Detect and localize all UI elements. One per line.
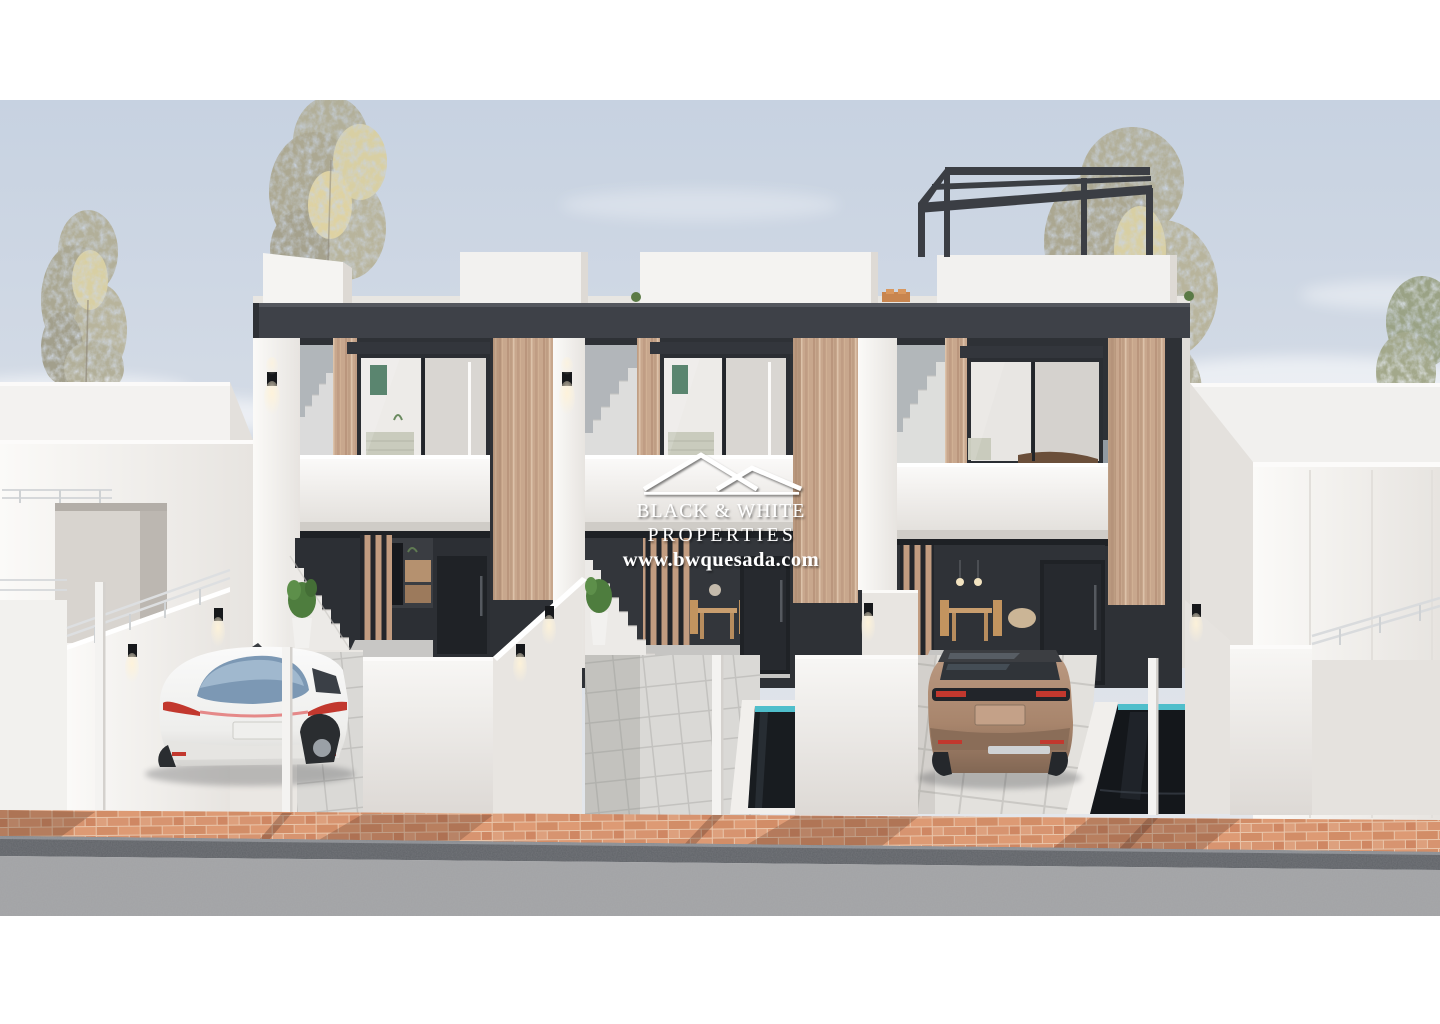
unit3-balcony (897, 463, 1130, 530)
unit1-wood-slat-screen (360, 535, 392, 655)
property-render-photo: BLACK & WHITE PROPERTIES www.bwquesada.c… (0, 0, 1440, 1024)
unit3-balcony-door (967, 358, 1123, 467)
bronze-suv (918, 650, 1082, 789)
unit1-balcony-door (357, 354, 490, 463)
unit2-balcony-door (660, 354, 790, 463)
roof-shrub (631, 292, 641, 302)
wood-pillar-1 (493, 338, 555, 600)
roof-shrub (1184, 291, 1194, 301)
logo-baseline (644, 492, 799, 495)
suv-skid-plate (988, 746, 1050, 754)
watermark-brand-line2: PROPERTIES (648, 525, 797, 546)
fascia-band (253, 303, 1190, 339)
bottom-margin (0, 916, 1440, 1024)
wood-pillar-3 (1108, 338, 1165, 605)
unit1-upper-floor (300, 338, 490, 463)
unit3-shutter-box (960, 346, 1103, 358)
sconce-light (264, 357, 280, 415)
neighbor-forecourt (1312, 660, 1440, 815)
unit1-shutter-box (347, 342, 490, 354)
watermark-website: www.bwquesada.com (623, 549, 819, 571)
unit1-balcony (290, 455, 490, 522)
unit3-upper-floor (897, 338, 1123, 467)
unit2-upper-floor (585, 338, 793, 463)
suv-license-plate (975, 705, 1025, 725)
sconce-light (559, 357, 575, 415)
watermark-brand-line1: BLACK & WHITE (636, 501, 805, 522)
unit2-stair-window (585, 345, 637, 463)
top-margin (0, 0, 1440, 100)
unit3-sofa (1008, 608, 1036, 628)
unit3-stair-window (897, 345, 945, 465)
unit1-entry-door (437, 556, 487, 654)
unit1-stair-window (300, 345, 333, 463)
unit1-wood-strip (333, 338, 357, 463)
center-pool (730, 700, 800, 814)
unit2-wood-strip (637, 338, 660, 463)
unit1-dresser (366, 432, 414, 459)
unit2-shutter-box (650, 342, 793, 354)
